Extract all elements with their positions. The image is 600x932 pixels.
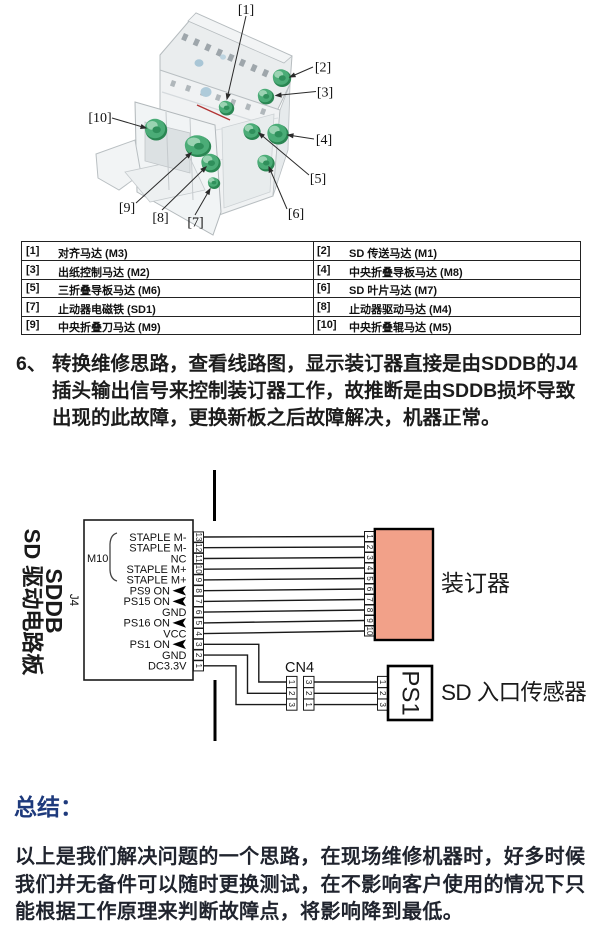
svg-text:3: 3 [365, 555, 374, 560]
svg-text:1: 1 [365, 534, 374, 539]
svg-text:1: 1 [194, 664, 203, 669]
svg-text:7: 7 [194, 599, 203, 604]
svg-text:SD 驱动电路板: SD 驱动电路板 [20, 529, 45, 677]
svg-text:8: 8 [194, 588, 203, 593]
svg-text:[5]: [5] [310, 172, 326, 187]
svg-text:13: 13 [194, 532, 203, 542]
svg-text:1: 1 [378, 680, 387, 685]
svg-text:DC3.3V: DC3.3V [148, 661, 187, 673]
svg-text:J4: J4 [67, 594, 79, 607]
svg-text:2: 2 [378, 691, 387, 696]
svg-text:[7]: [7] [187, 216, 203, 231]
svg-text:10: 10 [194, 565, 203, 575]
svg-text:CN4: CN4 [285, 660, 314, 676]
svg-text:[3]: [3] [317, 86, 333, 101]
svg-text:[2]: [2] [315, 61, 331, 76]
svg-text:5: 5 [365, 576, 374, 581]
svg-text:9: 9 [194, 578, 203, 583]
svg-text:2: 2 [304, 691, 313, 696]
svg-text:[9]: [9] [119, 201, 135, 216]
svg-text:[6]: [6] [288, 207, 304, 222]
svg-text:1: 1 [287, 680, 296, 685]
svg-text:1: 1 [304, 702, 313, 707]
svg-text:[4]: [4] [316, 133, 332, 148]
svg-text:5: 5 [194, 621, 203, 626]
svg-text:4: 4 [194, 631, 203, 636]
svg-text:M10: M10 [87, 553, 108, 565]
svg-text:9: 9 [365, 618, 374, 623]
svg-text:2: 2 [365, 545, 374, 550]
svg-text:6: 6 [365, 587, 374, 592]
svg-text:PS1: PS1 [397, 670, 424, 715]
svg-text:8: 8 [365, 608, 374, 613]
svg-text:[8]: [8] [152, 211, 168, 226]
svg-text:4: 4 [365, 566, 374, 571]
svg-text:3: 3 [304, 680, 313, 685]
svg-text:10: 10 [365, 626, 374, 636]
svg-text:3: 3 [378, 702, 387, 707]
svg-text:11: 11 [194, 554, 203, 563]
svg-text:2: 2 [287, 691, 296, 696]
svg-text:[10]: [10] [88, 111, 111, 126]
svg-text:2: 2 [194, 653, 203, 658]
svg-text:[1]: [1] [238, 3, 254, 18]
svg-text:SD 入口传感器: SD 入口传感器 [441, 680, 586, 705]
svg-text:3: 3 [287, 702, 296, 707]
svg-text:3: 3 [194, 642, 203, 647]
svg-text:12: 12 [194, 543, 203, 553]
svg-text:装订器: 装订器 [441, 570, 510, 596]
svg-text:7: 7 [365, 597, 374, 602]
svg-text:6: 6 [194, 610, 203, 615]
